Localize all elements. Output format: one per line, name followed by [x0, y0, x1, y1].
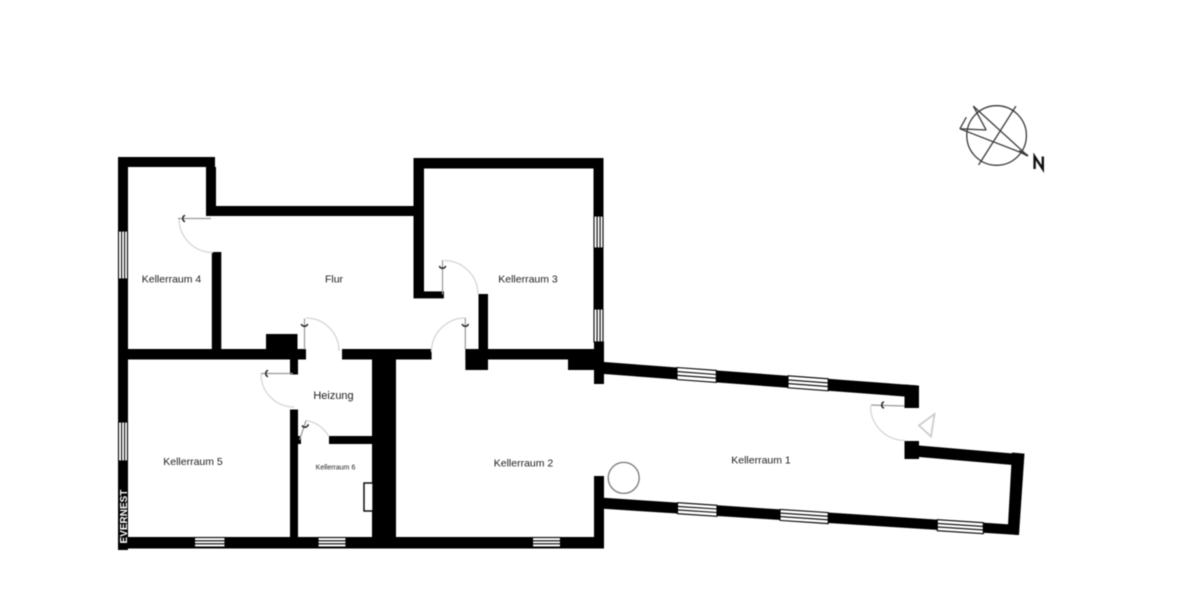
svg-text:Kellerraum 1: Kellerraum 1	[731, 455, 791, 467]
svg-text:Kellerraum 6: Kellerraum 6	[316, 464, 356, 471]
svg-text:Flur: Flur	[325, 274, 344, 286]
svg-text:Kellerraum 5: Kellerraum 5	[163, 456, 223, 468]
svg-text:EVERNEST: EVERNEST	[119, 490, 130, 544]
svg-text:Kellerraum 4: Kellerraum 4	[142, 274, 202, 286]
svg-text:Kellerraum 3: Kellerraum 3	[498, 274, 558, 286]
svg-text:Kellerraum 2: Kellerraum 2	[494, 458, 554, 470]
svg-text:Heizung: Heizung	[313, 390, 353, 402]
